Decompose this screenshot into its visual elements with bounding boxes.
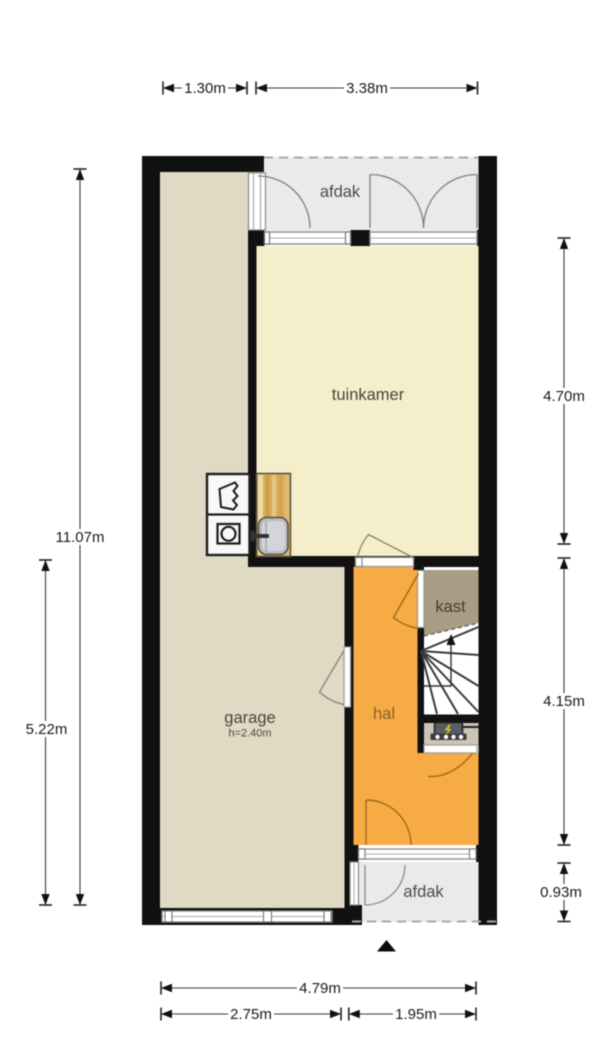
svg-text:5.22m: 5.22m bbox=[26, 721, 68, 738]
svg-text:4.79m: 4.79m bbox=[299, 980, 341, 997]
svg-text:3.38m: 3.38m bbox=[346, 80, 388, 97]
svg-text:2.75m: 2.75m bbox=[230, 1006, 272, 1023]
svg-text:h=2.40m: h=2.40m bbox=[228, 728, 271, 740]
svg-text:tuinkamer: tuinkamer bbox=[332, 386, 405, 404]
svg-text:1.95m: 1.95m bbox=[395, 1006, 437, 1023]
svg-text:hal: hal bbox=[373, 705, 395, 723]
svg-text:kast: kast bbox=[435, 598, 466, 616]
svg-text:4.70m: 4.70m bbox=[543, 388, 585, 405]
svg-text:1.30m: 1.30m bbox=[184, 80, 226, 97]
svg-text:4.15m: 4.15m bbox=[543, 693, 585, 710]
svg-text:11.07m: 11.07m bbox=[56, 529, 105, 546]
svg-text:afdak: afdak bbox=[320, 183, 361, 201]
svg-text:afdak: afdak bbox=[403, 883, 444, 901]
svg-text:garage: garage bbox=[224, 709, 275, 727]
svg-text:0.93m: 0.93m bbox=[540, 884, 582, 901]
